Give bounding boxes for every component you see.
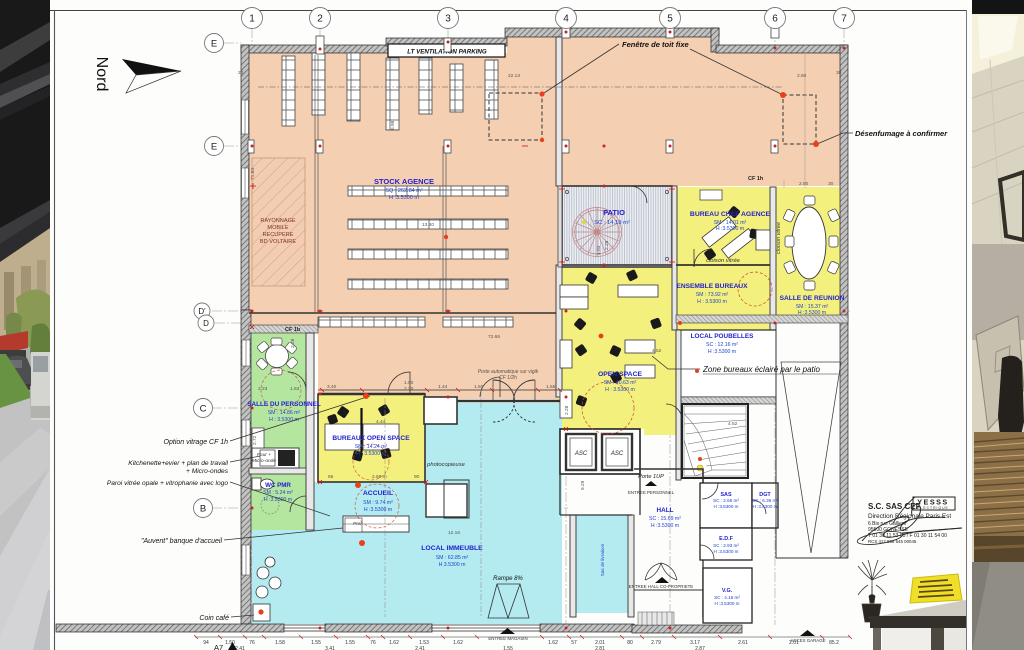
svg-text:CF 1b: CF 1b <box>285 327 301 333</box>
svg-text:H :3.5300 m: H :3.5300 m <box>389 195 419 201</box>
svg-text:1.62: 1.62 <box>548 640 558 646</box>
svg-text:20: 20 <box>238 70 244 76</box>
svg-text:30: 30 <box>836 70 842 76</box>
svg-text:30: 30 <box>828 181 834 187</box>
svg-text:2: 2 <box>317 14 323 25</box>
svg-text:D: D <box>203 319 209 328</box>
svg-text:E: E <box>211 142 217 153</box>
svg-text:90: 90 <box>414 474 420 480</box>
svg-text:1.44: 1.44 <box>438 384 448 390</box>
svg-text:Kitchenette+evier + plan de tr: Kitchenette+evier + plan de travail <box>128 460 228 467</box>
svg-text:1: 1 <box>249 14 255 25</box>
svg-text:SM : 14.86 m²: SM : 14.86 m² <box>268 410 301 416</box>
svg-text:7: 7 <box>841 14 847 25</box>
svg-text:1.55: 1.55 <box>345 640 355 646</box>
svg-text:2.23: 2.23 <box>258 386 268 392</box>
svg-text:SC : 2.66 m²: SC : 2.66 m² <box>713 498 739 503</box>
svg-text:1.00: 1.00 <box>404 380 414 386</box>
svg-text:2.87: 2.87 <box>695 646 705 650</box>
svg-text:RECUPERE: RECUPERE <box>262 232 293 238</box>
svg-text:ASC: ASC <box>610 451 624 457</box>
svg-text:ELECTRIQUE: ELECTRIQUE <box>917 506 949 510</box>
svg-text:SM : 73.92 m²: SM : 73.92 m² <box>696 292 729 298</box>
svg-text:2.28: 2.28 <box>290 338 296 348</box>
svg-text:2.80: 2.80 <box>797 73 807 79</box>
svg-text:6.98: 6.98 <box>390 120 396 130</box>
svg-text:2.79: 2.79 <box>651 640 661 646</box>
svg-text:BD VOLTAIRE: BD VOLTAIRE <box>260 239 296 245</box>
svg-text:SC : 14.19 m²: SC : 14.19 m² <box>594 220 630 226</box>
svg-text:CF 1h: CF 1h <box>748 176 764 182</box>
svg-text:SQ : 262.84 m²: SQ : 262.84 m² <box>385 188 422 194</box>
svg-text:6: 6 <box>772 14 778 25</box>
svg-text:H :3.5300 m: H :3.5300 m <box>798 310 826 316</box>
svg-text:H :3.5300 m: H :3.5300 m <box>713 549 738 554</box>
svg-text:1.62: 1.62 <box>453 640 463 646</box>
svg-text:STOCK AGENCE: STOCK AGENCE <box>374 177 434 186</box>
svg-text:Fenêtre de toit fixe: Fenêtre de toit fixe <box>622 40 689 49</box>
svg-text:ENTREE PERSONNEL: ENTREE PERSONNEL <box>628 490 675 495</box>
svg-text:BUREAU CHEF AGENCE: BUREAU CHEF AGENCE <box>690 211 771 218</box>
svg-text:4.62: 4.62 <box>728 421 738 427</box>
svg-text:SALLE DE REUNION: SALLE DE REUNION <box>780 295 845 302</box>
svg-text:RAYONNAGE: RAYONNAGE <box>260 218 296 224</box>
svg-text:2.72: 2.72 <box>252 435 258 445</box>
svg-text:SM : 40.63 m²: SM : 40.63 m² <box>604 380 637 386</box>
svg-text:"Auvent" banque d'accueil: "Auvent" banque d'accueil <box>141 538 222 545</box>
svg-text:2.41: 2.41 <box>415 646 425 650</box>
svg-text:1.55: 1.55 <box>503 646 513 650</box>
svg-text:1.50: 1.50 <box>474 384 484 390</box>
svg-text:E: E <box>211 39 217 50</box>
svg-text:1.63: 1.63 <box>290 386 300 392</box>
svg-text:2.29: 2.29 <box>604 240 610 250</box>
svg-text:Paroi vitrée opale + vitrophan: Paroi vitrée opale + vitrophanie avec lo… <box>107 480 228 487</box>
svg-text:SM : 9.74 m²: SM : 9.74 m² <box>363 500 393 506</box>
svg-text:2.80: 2.80 <box>799 181 809 187</box>
svg-text:76: 76 <box>249 640 255 646</box>
svg-text:2.61: 2.61 <box>738 640 748 646</box>
svg-text:71.83: 71.83 <box>250 168 256 180</box>
svg-text:cloison vitrée: cloison vitrée <box>776 222 782 254</box>
svg-text:LOCAL IMMEUBLE: LOCAL IMMEUBLE <box>421 545 483 552</box>
svg-text:CF 1/2h: CF 1/2h <box>499 375 517 381</box>
svg-text:3.41: 3.41 <box>325 646 335 650</box>
svg-text:H :3.5300 m: H :3.5300 m <box>708 349 736 355</box>
svg-text:4.52: 4.52 <box>652 348 662 354</box>
svg-text:3: 3 <box>445 14 451 25</box>
svg-text:12.16: 12.16 <box>448 530 460 536</box>
svg-text:Four +: Four + <box>257 452 271 458</box>
svg-text:Désenfumage à confirmer: Désenfumage à confirmer <box>855 129 948 138</box>
svg-text:H : 3.5300 m: H : 3.5300 m <box>605 387 635 393</box>
svg-text:Micro-onde: Micro-onde <box>252 458 276 464</box>
svg-text:+ Micro-ondes: + Micro-ondes <box>186 468 229 475</box>
svg-text:3.40: 3.40 <box>327 384 337 390</box>
svg-text:5: 5 <box>667 14 673 25</box>
svg-text:SALLE DU PERSONNEL: SALLE DU PERSONNEL <box>247 401 321 408</box>
svg-text:Nord: Nord <box>93 57 110 92</box>
svg-text:H :3.5300 m: H :3.5300 m <box>716 226 744 232</box>
svg-text:72.66: 72.66 <box>488 334 500 340</box>
svg-text:Coin café: Coin café <box>199 615 229 622</box>
svg-text:2.30: 2.30 <box>404 386 414 392</box>
svg-text:13.40: 13.40 <box>422 222 434 228</box>
svg-text:H :3.5300 m: H :3.5300 m <box>752 504 777 509</box>
svg-text:4: 4 <box>563 14 569 25</box>
svg-text:ACCUEIL: ACCUEIL <box>363 490 393 497</box>
svg-text:C: C <box>200 404 207 415</box>
svg-text:H : 3.5300 m: H : 3.5300 m <box>697 299 727 305</box>
svg-text:BUREAUX OPEN SPACE: BUREAUX OPEN SPACE <box>332 435 410 442</box>
svg-text:94: 94 <box>203 640 209 646</box>
svg-text:Porte 1UP: Porte 1UP <box>638 474 664 480</box>
svg-text:85.2: 85.2 <box>829 640 839 646</box>
svg-text:57: 57 <box>571 640 577 646</box>
svg-text:2.28: 2.28 <box>564 405 570 415</box>
svg-text:SM : 14.24 m²: SM : 14.24 m² <box>355 444 388 450</box>
svg-text:Rampe 8%: Rampe 8% <box>493 576 523 582</box>
svg-text:Zone bureaux éclairé par le pa: Zone bureaux éclairé par le patio <box>702 365 821 374</box>
svg-text:B: B <box>200 504 206 515</box>
svg-text:H :3.5300 m: H :3.5300 m <box>714 601 739 606</box>
svg-text:RCS 412 556 545 00045: RCS 412 556 545 00045 <box>868 539 917 544</box>
svg-text:WC PMR: WC PMR <box>265 482 291 489</box>
svg-text:80: 80 <box>627 640 633 646</box>
svg-text:ASC: ASC <box>574 451 588 457</box>
svg-text:1.55: 1.55 <box>311 640 321 646</box>
svg-text:E.D.F: E.D.F <box>719 536 733 542</box>
svg-text:V.G.: V.G. <box>722 588 733 594</box>
svg-text:LOCAL POUBELLES: LOCAL POUBELLES <box>691 333 754 340</box>
svg-text:22.13: 22.13 <box>508 73 520 79</box>
svg-text:ENTREE HALL CO-PROPRIETE: ENTREE HALL CO-PROPRIETE <box>629 584 694 589</box>
svg-text:MOBILE: MOBILE <box>267 225 288 231</box>
svg-text:H : 3.5300 m: H : 3.5300 m <box>356 451 386 457</box>
svg-text:9.29: 9.29 <box>580 480 586 490</box>
svg-text:OPEN SPACE: OPEN SPACE <box>598 371 643 378</box>
svg-text:4.44: 4.44 <box>376 419 386 425</box>
svg-text:H :3.5300 m: H :3.5300 m <box>364 507 392 513</box>
svg-text:2.81: 2.81 <box>595 646 605 650</box>
svg-text:H :3.5300 m: H :3.5300 m <box>264 497 292 503</box>
svg-text:SM : 62.85 m²: SM : 62.85 m² <box>436 555 469 561</box>
svg-text:photocopieuse: photocopieuse <box>426 462 465 468</box>
svg-text:76: 76 <box>370 640 376 646</box>
svg-text:1.55: 1.55 <box>546 384 556 390</box>
svg-text:4.04: 4.04 <box>596 245 602 255</box>
svg-text:PATIO: PATIO <box>603 208 625 217</box>
svg-text:2.68 m: 2.68 m <box>372 474 387 480</box>
svg-text:SC : 15.69 m²: SC : 15.69 m² <box>649 516 681 522</box>
svg-text:SC : 6.36 m²: SC : 6.36 m² <box>752 498 778 503</box>
svg-text:Sas de livraison: Sas de livraison <box>600 543 605 576</box>
svg-text:D': D' <box>198 307 206 316</box>
svg-text:SC : 4.16 m²: SC : 4.16 m² <box>714 595 740 600</box>
svg-text:H :3.5300 m: H :3.5300 m <box>713 504 738 509</box>
svg-text:A7: A7 <box>214 643 223 650</box>
svg-text:Option vitrage CF 1h: Option vitrage CF 1h <box>164 439 229 446</box>
svg-text:2.01: 2.01 <box>789 640 799 646</box>
svg-text:SC : 2.93 m²: SC : 2.93 m² <box>713 543 739 548</box>
svg-text:1.58: 1.58 <box>275 640 285 646</box>
svg-text:H 3.5300 m: H 3.5300 m <box>439 562 466 568</box>
svg-text:65: 65 <box>328 474 334 480</box>
svg-text:ENSEMBLE BUREAUX: ENSEMBLE BUREAUX <box>676 283 748 290</box>
svg-text:H :3.5300 m: H :3.5300 m <box>651 523 679 529</box>
svg-text:HALL: HALL <box>656 507 673 514</box>
svg-text:1.62: 1.62 <box>389 640 399 646</box>
svg-text:SC : 12.16 m²: SC : 12.16 m² <box>706 342 738 348</box>
svg-text:Direction Régionale Paris Est: Direction Régionale Paris Est <box>868 513 951 520</box>
